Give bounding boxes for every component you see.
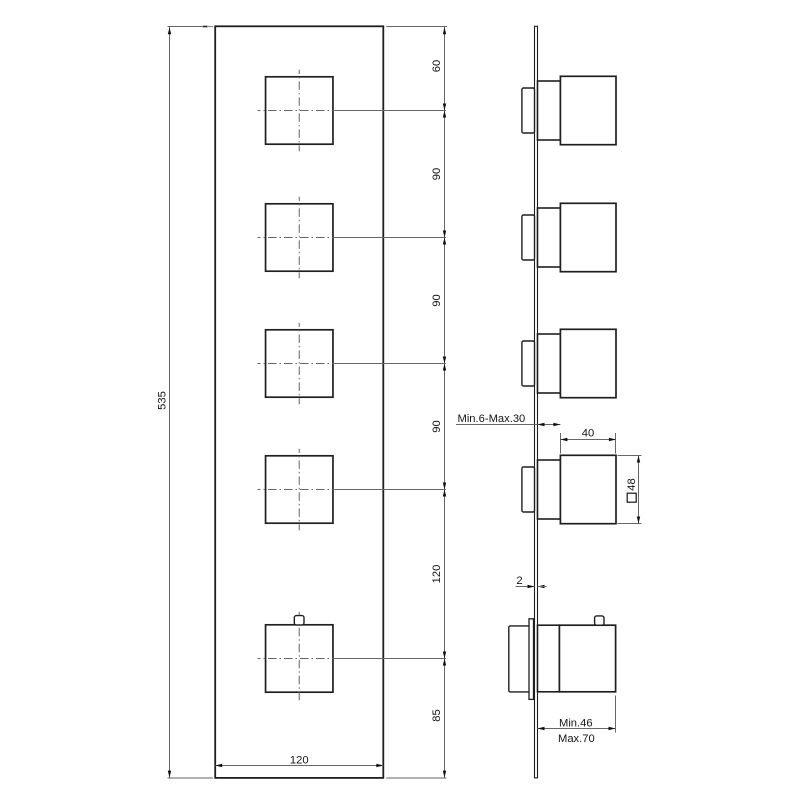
svg-text:85: 85 (431, 709, 443, 721)
svg-text:120: 120 (290, 754, 309, 766)
svg-text:Min.46: Min.46 (559, 718, 593, 730)
svg-text:40: 40 (582, 428, 594, 440)
svg-text:535: 535 (157, 391, 169, 410)
svg-text:Min.6-Max.30: Min.6-Max.30 (458, 413, 526, 425)
svg-text:2: 2 (516, 575, 522, 587)
svg-text:90: 90 (431, 420, 443, 432)
svg-text:Max.70: Max.70 (558, 733, 595, 745)
svg-text:48: 48 (626, 478, 638, 490)
svg-text:60: 60 (431, 60, 443, 72)
svg-text:120: 120 (431, 565, 443, 584)
svg-text:90: 90 (431, 294, 443, 306)
svg-text:90: 90 (431, 168, 443, 180)
